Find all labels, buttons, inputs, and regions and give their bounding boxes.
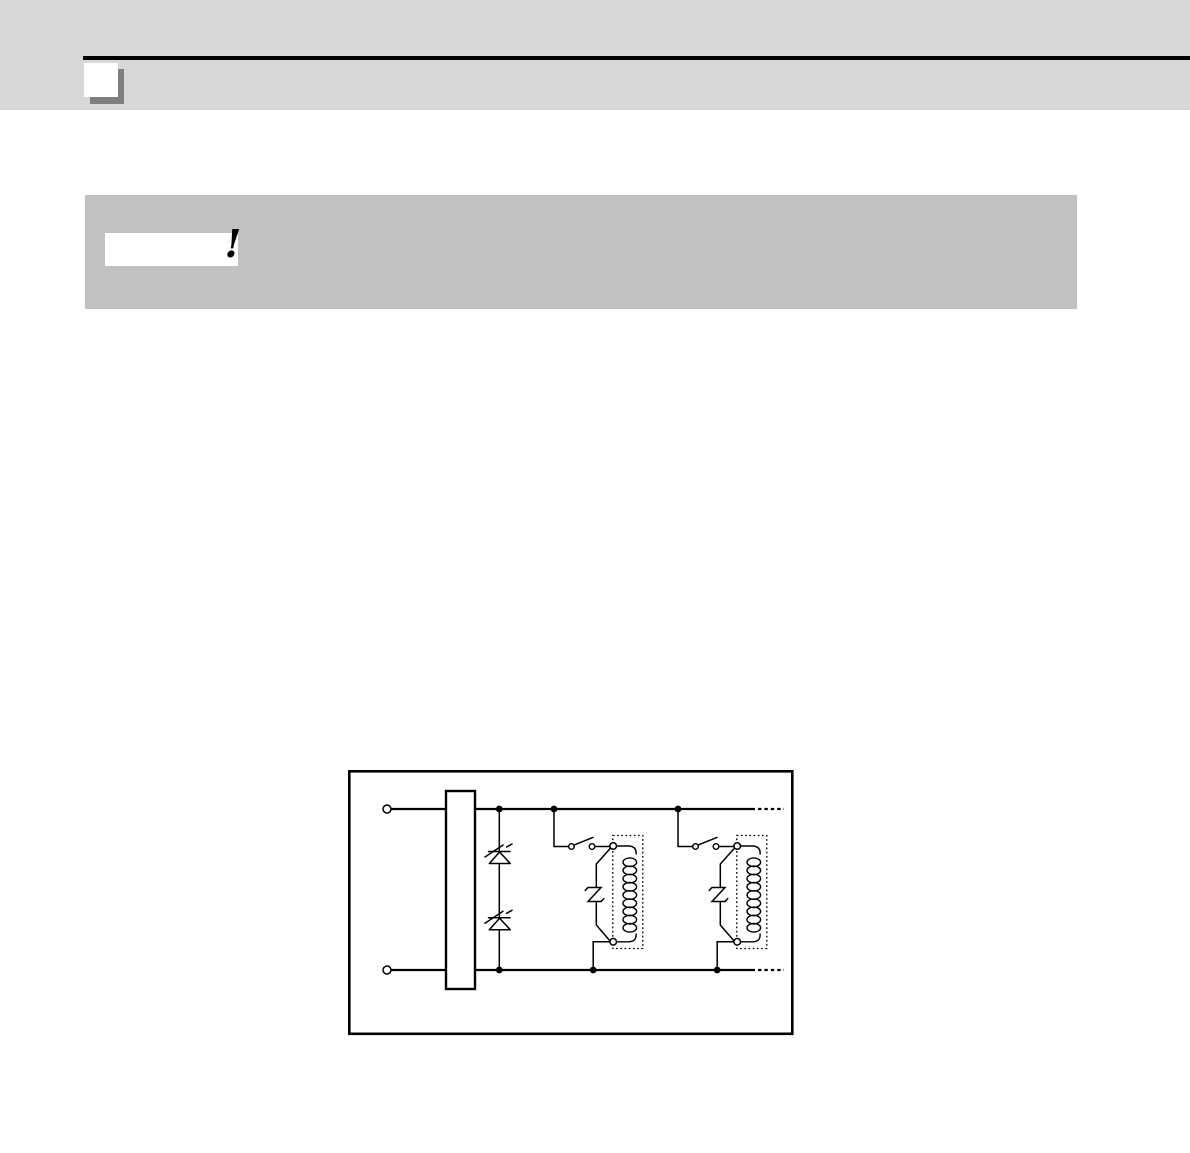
- header-rule: [83, 56, 1190, 60]
- manual-page: !: [0, 0, 1190, 1153]
- filter-block: [446, 791, 475, 989]
- circuit-diagram: [348, 770, 794, 1036]
- input-terminal-bottom: [383, 966, 391, 974]
- input-terminal-top: [383, 805, 391, 813]
- junction-dot: [496, 806, 503, 813]
- header-band: [0, 0, 1190, 110]
- caution-panel: !: [85, 195, 1077, 309]
- diagram-frame: [349, 771, 792, 1034]
- exclamation-icon: !: [215, 226, 251, 262]
- page-corner-icon: [84, 63, 118, 97]
- junction-dot: [496, 967, 503, 974]
